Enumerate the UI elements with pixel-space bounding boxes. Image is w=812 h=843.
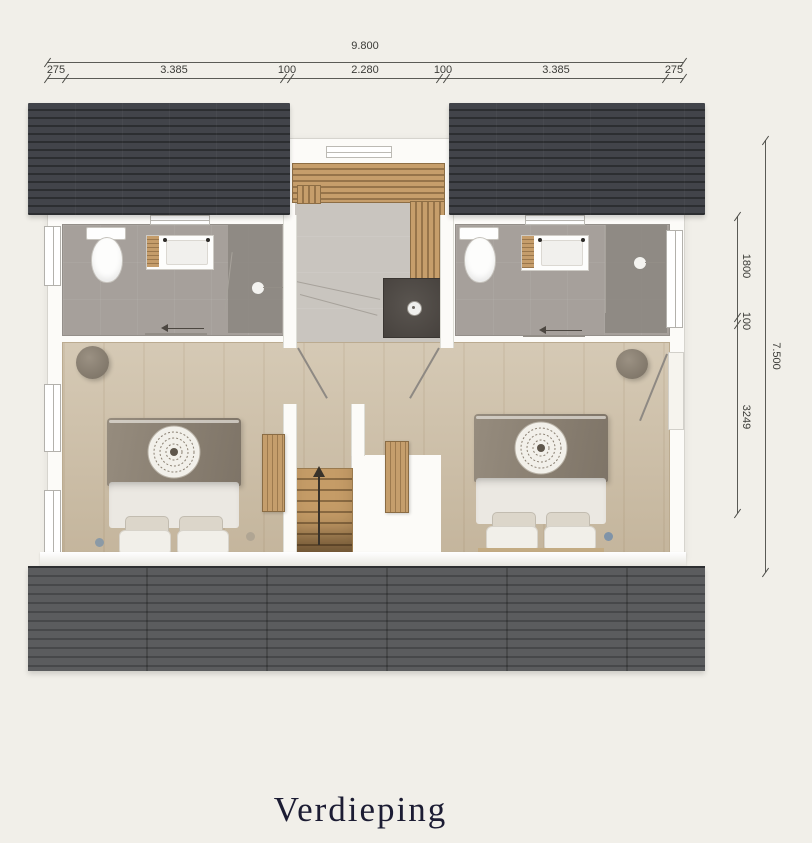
faucet-icon — [581, 238, 585, 242]
window-left-3 — [44, 490, 61, 554]
vanity-shelf — [522, 236, 534, 268]
wardrobe-right — [385, 441, 409, 513]
bed-fold — [109, 420, 239, 423]
shower-arm — [263, 287, 283, 288]
eave-bottom — [40, 552, 686, 566]
faucet-icon — [163, 238, 167, 242]
stairs-up-arrow — [318, 477, 320, 545]
mandala-throw-icon — [513, 420, 569, 476]
bathroom-left-shower — [228, 225, 282, 333]
dim-line-total-right — [765, 140, 766, 572]
bed-right — [474, 414, 608, 554]
bathroom-left-window — [150, 215, 210, 225]
roof-top-left — [28, 103, 290, 215]
wall-landing-left — [283, 215, 297, 348]
window-left-1 — [44, 226, 61, 286]
faucet-icon — [206, 238, 210, 242]
dormer-window — [326, 146, 392, 158]
wall-stair-left — [283, 404, 297, 554]
toilet-bowl — [464, 237, 496, 283]
shower-head-icon — [251, 281, 265, 295]
floorplan-page: 9.800 275 3.385 100 2.280 100 3.385 275 … — [0, 0, 812, 843]
sliding-door-arrow — [546, 330, 582, 331]
dim-seg: 3249 — [740, 395, 752, 439]
glass-screen — [605, 225, 606, 313]
staircase — [292, 468, 353, 556]
toilet-bowl — [91, 237, 123, 283]
vanity-shelf — [147, 236, 159, 267]
wardrobe-left — [262, 434, 285, 512]
page-title: Verdieping — [198, 790, 523, 830]
sliding-door-panel — [145, 333, 207, 335]
dim-seg: 3.385 — [531, 64, 581, 76]
bathroom-right-window — [525, 215, 585, 225]
dim-line-total-top — [47, 62, 683, 63]
dim-seg: 3.385 — [149, 64, 199, 76]
wall-stair-right — [351, 404, 365, 456]
dim-seg: 2.280 — [340, 64, 390, 76]
plant-pot-icon — [246, 532, 255, 541]
sink-icon — [166, 240, 208, 265]
wall-landing-right — [440, 215, 454, 348]
dim-seg: 1800 — [740, 244, 752, 288]
plant-pot-icon — [604, 532, 613, 541]
dim-seg: 100 — [740, 303, 752, 339]
sink-icon — [541, 240, 583, 266]
mandala-throw-icon — [146, 424, 202, 480]
bed-left — [107, 418, 241, 558]
sliding-door-arrow — [168, 328, 204, 329]
shower-drain-icon — [407, 301, 422, 316]
sliding-door-arrow-head — [539, 326, 546, 334]
shower-arm — [645, 262, 665, 263]
window-right-1 — [666, 230, 683, 328]
bathroom-right-shower — [605, 225, 667, 333]
plant-pot-icon — [95, 538, 104, 547]
door-right-opening — [668, 352, 684, 430]
pouf-icon — [616, 349, 648, 379]
pouf-icon — [76, 346, 109, 379]
shower-head-icon — [633, 256, 647, 270]
dim-line-segments-top — [47, 78, 683, 79]
dim-total-height: 7.500 — [770, 334, 782, 378]
roof-top-right — [449, 103, 705, 215]
window-left-2 — [44, 384, 61, 452]
stairs-up-arrow-head — [313, 466, 325, 477]
sliding-door-panel — [523, 335, 585, 337]
sliding-door-arrow-head — [161, 324, 168, 332]
dim-line-segments-right — [737, 216, 738, 513]
bed-fold — [476, 416, 606, 419]
faucet-icon — [538, 238, 542, 242]
roof-bottom — [28, 566, 705, 671]
wood-slat-block — [297, 185, 321, 204]
